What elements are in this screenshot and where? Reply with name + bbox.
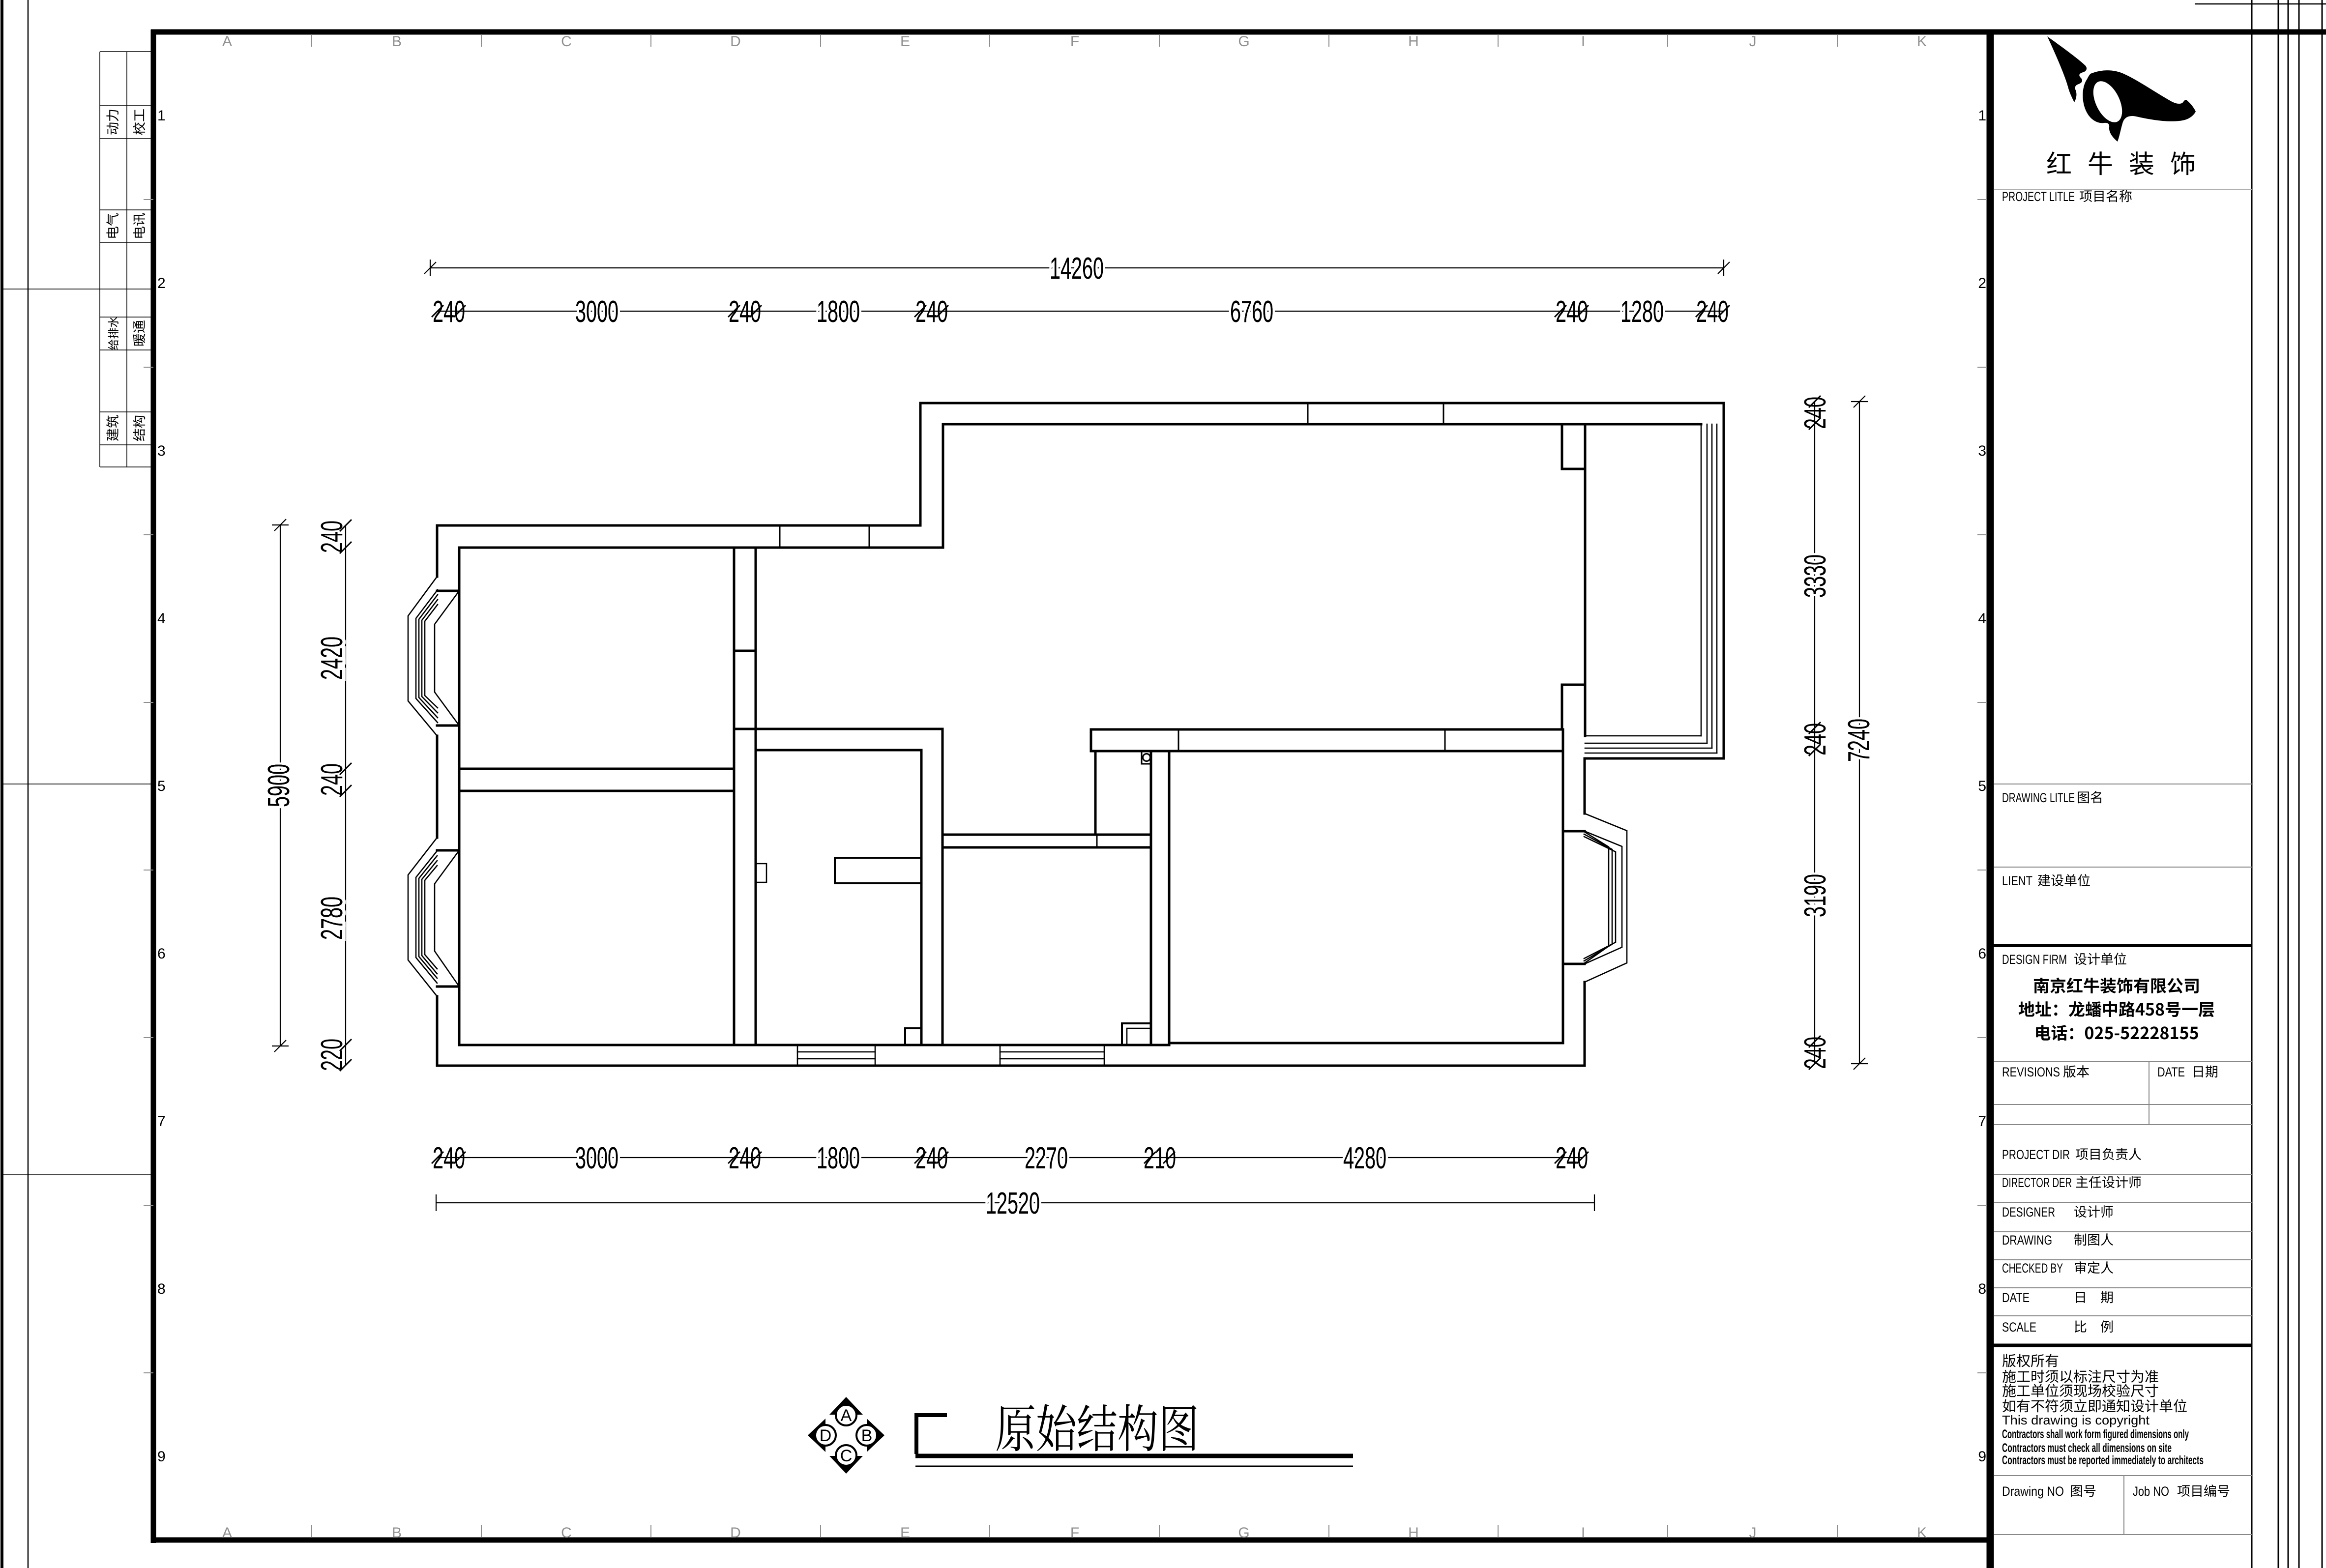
svg-text:B: B: [392, 33, 402, 50]
svg-text:9: 9: [1978, 1449, 1986, 1465]
svg-text:1: 1: [1978, 108, 1986, 124]
svg-text:J: J: [1749, 33, 1757, 50]
svg-text:DESIGNER: DESIGNER: [2002, 1205, 2055, 1220]
svg-text:A: A: [222, 1525, 232, 1541]
svg-text:1: 1: [157, 108, 166, 124]
svg-text:240: 240: [729, 1141, 761, 1175]
svg-text:This drawing is copyright: This drawing is copyright: [2002, 1413, 2150, 1427]
svg-text:3: 3: [157, 443, 166, 459]
svg-text:B: B: [861, 1426, 873, 1445]
svg-text:3190: 3190: [1798, 874, 1832, 917]
svg-text:A: A: [222, 33, 232, 50]
svg-text:240: 240: [315, 521, 349, 553]
svg-text:7: 7: [1978, 1113, 1986, 1130]
svg-text:6760: 6760: [1230, 295, 1273, 329]
svg-text:G: G: [1238, 1525, 1249, 1541]
svg-text:Contractors must check all dim: Contractors must check all dimensions on…: [2002, 1441, 2172, 1455]
svg-text:8: 8: [1978, 1281, 1986, 1297]
svg-text:2: 2: [1978, 275, 1986, 291]
svg-text:E: E: [900, 1525, 910, 1541]
svg-text:F: F: [1070, 1525, 1079, 1541]
svg-text:4280: 4280: [1343, 1141, 1386, 1175]
svg-text:A: A: [841, 1406, 852, 1425]
svg-text:DATE: DATE: [2002, 1290, 2030, 1305]
svg-text:5900: 5900: [262, 764, 296, 807]
svg-text:C: C: [561, 33, 572, 50]
svg-text:G: G: [1238, 33, 1249, 50]
svg-text:B: B: [392, 1525, 402, 1541]
svg-text:220: 220: [315, 1039, 349, 1071]
svg-text:PROJECT DIR: PROJECT DIR: [2002, 1147, 2070, 1162]
svg-text:240: 240: [915, 295, 948, 329]
svg-text:C: C: [561, 1525, 572, 1541]
svg-text:DATE: DATE: [2157, 1065, 2185, 1079]
svg-text:REVISIONS: REVISIONS: [2002, 1065, 2060, 1079]
svg-text:240: 240: [433, 295, 465, 329]
svg-text:4: 4: [157, 610, 166, 627]
svg-text:DIRECTOR DER: DIRECTOR DER: [2002, 1175, 2072, 1190]
svg-text:240: 240: [1556, 295, 1588, 329]
svg-text:I: I: [1581, 33, 1585, 50]
svg-text:2420: 2420: [315, 637, 349, 680]
svg-text:J: J: [1749, 1525, 1757, 1541]
svg-text:7: 7: [157, 1113, 166, 1130]
svg-text:240: 240: [729, 295, 761, 329]
svg-text:240: 240: [1798, 397, 1832, 429]
svg-text:D: D: [730, 1525, 741, 1541]
svg-text:6: 6: [1978, 946, 1986, 962]
svg-text:F: F: [1070, 33, 1079, 50]
svg-text:5: 5: [1978, 778, 1986, 794]
svg-text:240: 240: [1798, 1037, 1832, 1069]
svg-text:6: 6: [157, 946, 166, 962]
svg-text:D: D: [820, 1426, 832, 1445]
svg-text:K: K: [1917, 1525, 1927, 1541]
svg-text:9: 9: [157, 1449, 166, 1465]
svg-text:240: 240: [315, 763, 349, 796]
svg-text:K: K: [1917, 33, 1927, 50]
svg-text:SCALE: SCALE: [2002, 1320, 2036, 1335]
svg-text:3000: 3000: [575, 295, 618, 329]
svg-text:E: E: [900, 33, 910, 50]
svg-text:D: D: [730, 33, 741, 50]
svg-text:5: 5: [157, 778, 166, 794]
svg-text:I: I: [1581, 1525, 1585, 1541]
svg-text:DRAWING LITLE: DRAWING LITLE: [2002, 790, 2075, 805]
svg-text:7240: 7240: [1842, 719, 1876, 762]
svg-text:14260: 14260: [1050, 252, 1104, 286]
svg-text:12520: 12520: [986, 1187, 1040, 1220]
svg-text:2270: 2270: [1025, 1141, 1068, 1175]
svg-text:240: 240: [1696, 295, 1729, 329]
svg-text:4: 4: [1978, 610, 1986, 627]
svg-text:210: 210: [1144, 1141, 1176, 1175]
svg-text:240: 240: [433, 1141, 465, 1175]
svg-text:LIENT: LIENT: [2002, 873, 2032, 888]
svg-text:2: 2: [157, 275, 166, 291]
svg-text:Job NO: Job NO: [2133, 1484, 2169, 1499]
svg-text:1800: 1800: [817, 295, 860, 329]
svg-text:CHECKED BY: CHECKED BY: [2002, 1261, 2063, 1276]
svg-text:H: H: [1408, 33, 1419, 50]
svg-text:240: 240: [1556, 1141, 1588, 1175]
svg-text:3330: 3330: [1798, 554, 1832, 598]
svg-text:2780: 2780: [315, 897, 349, 940]
svg-text:3000: 3000: [575, 1141, 618, 1175]
svg-text:240: 240: [915, 1141, 948, 1175]
svg-text:8: 8: [157, 1281, 166, 1297]
svg-text:1800: 1800: [817, 1141, 860, 1175]
svg-text:240: 240: [1798, 723, 1832, 755]
svg-text:DESIGN FIRM: DESIGN FIRM: [2002, 952, 2067, 967]
svg-text:Drawing NO: Drawing NO: [2002, 1484, 2064, 1499]
svg-text:DRAWING: DRAWING: [2002, 1233, 2052, 1248]
svg-text:PROJECT LITLE: PROJECT LITLE: [2002, 189, 2075, 204]
svg-text:Contractors must be reported i: Contractors must be reported immediately…: [2002, 1453, 2204, 1467]
svg-text:3: 3: [1978, 443, 1986, 459]
svg-text:Contractors shall work form fi: Contractors shall work form figured dime…: [2002, 1427, 2189, 1441]
svg-text:C: C: [840, 1447, 853, 1465]
svg-text:H: H: [1408, 1525, 1419, 1541]
svg-text:1280: 1280: [1620, 295, 1664, 329]
